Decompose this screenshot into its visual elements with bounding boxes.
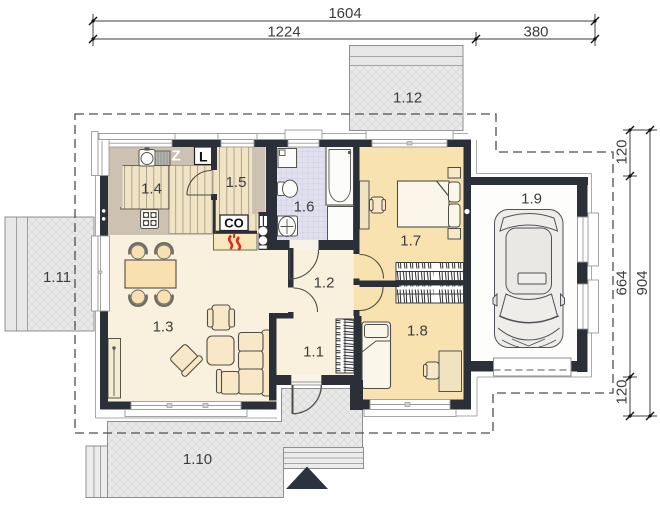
svg-text:1224: 1224	[267, 24, 300, 41]
svg-text:1.4: 1.4	[141, 180, 162, 197]
svg-text:1.1: 1.1	[303, 343, 324, 360]
svg-text:1.7: 1.7	[400, 232, 421, 249]
svg-text:120: 120	[614, 379, 631, 404]
svg-text:CO: CO	[224, 216, 244, 231]
svg-text:1.10: 1.10	[183, 451, 212, 468]
svg-text:1604: 1604	[328, 5, 361, 22]
svg-text:1.5: 1.5	[226, 174, 247, 191]
svg-text:1.3: 1.3	[153, 318, 174, 335]
svg-text:904: 904	[634, 270, 651, 295]
svg-text:1.11: 1.11	[43, 269, 71, 286]
svg-text:664: 664	[614, 270, 631, 295]
svg-text:1.6: 1.6	[294, 198, 315, 215]
svg-text:1.8: 1.8	[407, 322, 428, 339]
svg-text:Z: Z	[172, 148, 181, 165]
svg-text:1.2: 1.2	[314, 274, 335, 291]
svg-text:1.12: 1.12	[393, 89, 422, 106]
svg-text:120: 120	[614, 139, 631, 164]
svg-text:L: L	[199, 149, 208, 165]
svg-text:380: 380	[523, 24, 548, 41]
svg-text:1.9: 1.9	[521, 190, 542, 207]
